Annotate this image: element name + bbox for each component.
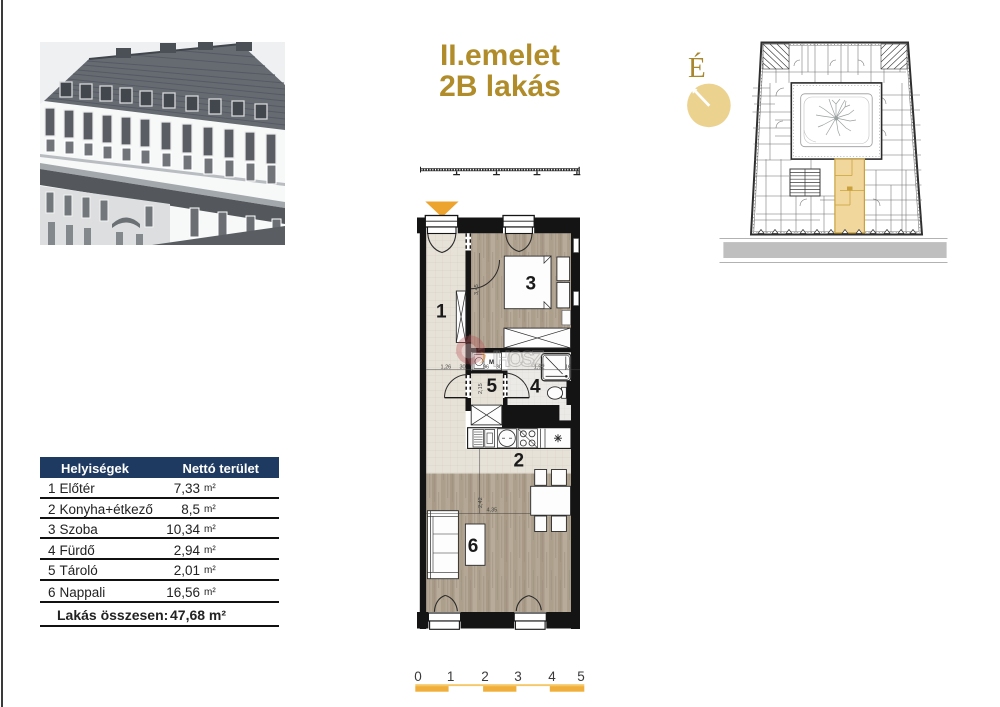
svg-text:96: 96 — [483, 364, 489, 370]
svg-text:É: É — [688, 51, 706, 84]
svg-text:16: 16 — [565, 364, 571, 370]
svg-text:4: 4 — [530, 377, 541, 398]
svg-text:3: 3 — [526, 274, 537, 295]
svg-text:3,45: 3,45 — [474, 284, 480, 295]
svg-text:4: 4 — [548, 669, 556, 684]
svg-text:5: 5 — [487, 376, 498, 397]
svg-text:1,26: 1,26 — [441, 364, 452, 370]
svg-text:6: 6 — [468, 536, 479, 557]
svg-text:5: 5 — [577, 669, 585, 684]
svg-text:0: 0 — [414, 669, 422, 684]
svg-text:2: 2 — [481, 669, 489, 684]
svg-text:IHOSZ: IHOSZ — [493, 347, 545, 372]
svg-text:2,42: 2,42 — [478, 497, 484, 508]
svg-text:3: 3 — [514, 669, 522, 684]
svg-text:2,15: 2,15 — [478, 383, 484, 394]
svg-text:4,35: 4,35 — [487, 508, 498, 514]
svg-text:2: 2 — [514, 451, 525, 472]
svg-text:1: 1 — [436, 302, 447, 323]
svg-text:1: 1 — [447, 669, 455, 684]
svg-text:30: 30 — [460, 364, 466, 370]
